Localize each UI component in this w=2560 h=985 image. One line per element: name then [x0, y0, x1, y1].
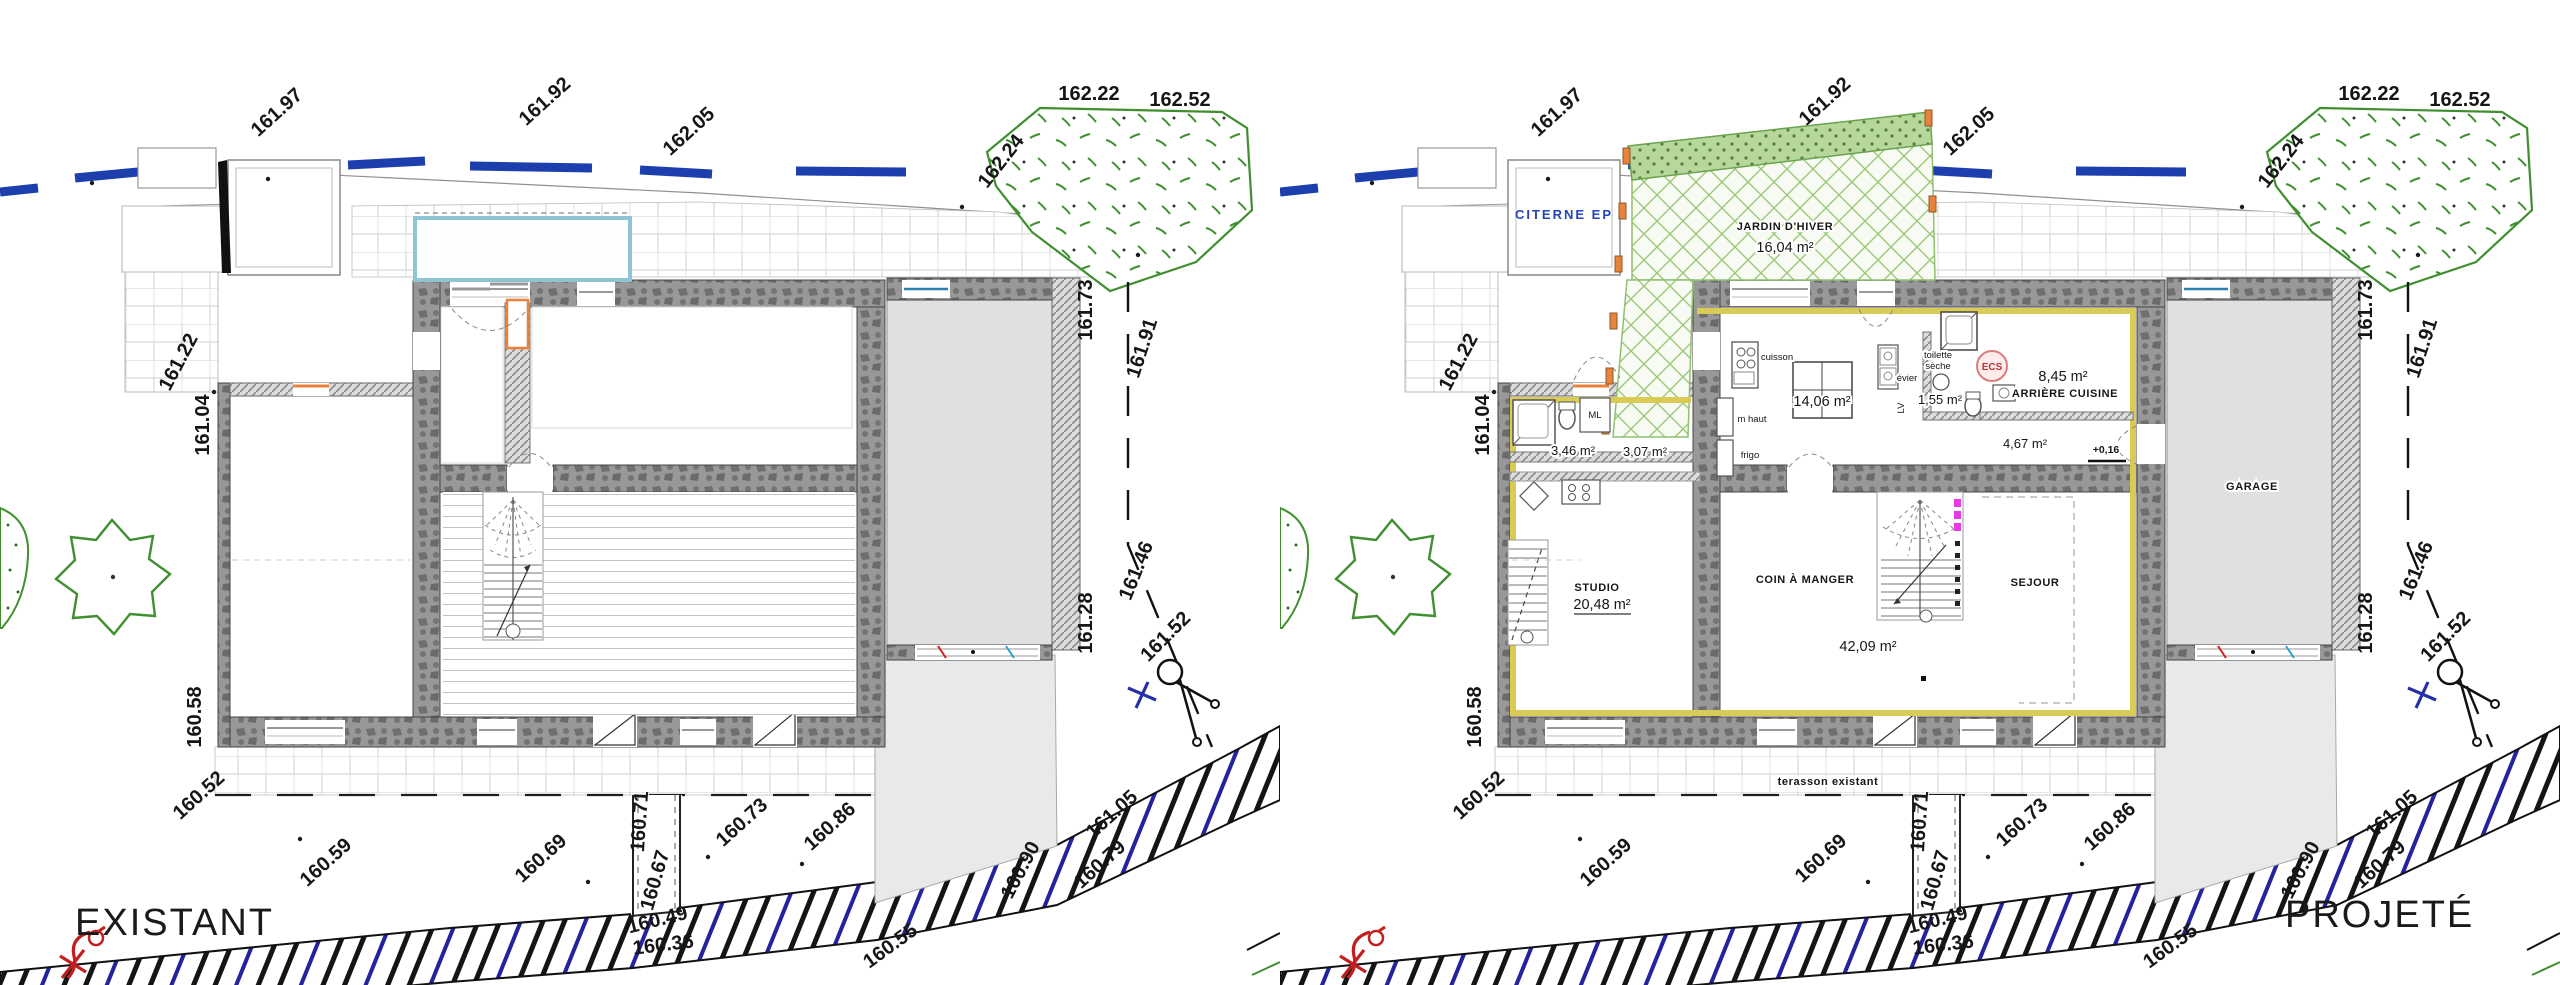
counter	[1510, 472, 1700, 481]
living-area: 42,09 m²	[1839, 639, 1896, 655]
m-haut-label: m haut	[1737, 414, 1766, 425]
stair-magenta-marks	[1954, 499, 1961, 531]
cuisson-label: cuisson	[1761, 352, 1793, 363]
lv-label: LV	[1896, 402, 1907, 414]
stair-main	[1877, 492, 1963, 622]
arriere-name: ARRIÈRE CUISINE	[2012, 387, 2118, 400]
arriere-area: 8,45 m²	[2038, 369, 2087, 385]
cellier-area: 4,67 m²	[2003, 436, 2048, 451]
plan-existant: EXISTANT	[0, 0, 1280, 985]
coin-name: COIN À MANGER	[1756, 573, 1854, 586]
frigo-label: frigo	[1741, 450, 1759, 461]
studio-name: STUDIO	[1574, 582, 1619, 594]
stair-existing	[483, 492, 543, 640]
garage-label: GARAGE	[2226, 481, 2278, 493]
kitchen-area: 14,06 m²	[1793, 394, 1850, 410]
level-label: +0,16	[2093, 444, 2120, 456]
ml-label: ML	[1588, 410, 1601, 421]
veranda-outline	[415, 218, 630, 280]
bath-area: 3,46 m²	[1551, 443, 1596, 458]
sejour-name: SEJOUR	[2011, 577, 2060, 589]
ecs-label: ECS	[1982, 362, 2003, 373]
site-plan-comparison: 161.97 161.92 162.05 162.24 162.22 162.5…	[0, 0, 2560, 985]
door-to-garage	[2137, 424, 2165, 464]
studio-area: 20,48 m²	[1573, 597, 1630, 613]
plan-title-existant: EXISTANT	[75, 902, 274, 944]
partition	[1980, 412, 2133, 420]
jardin-name: JARDIN D'HIVER	[1737, 221, 1834, 233]
winter-garden-strip	[1613, 280, 1693, 437]
entry-area: 3,07 m²	[1623, 444, 1668, 459]
plan-projete: CITERNE EP JARDIN D'HIVER 16,04 m² cuiss…	[1280, 0, 2560, 985]
toilette-label-1: toilette	[1924, 350, 1952, 361]
stair-studio	[1508, 540, 1548, 645]
terrace-label: terasson existant	[1778, 776, 1879, 788]
jardin-area: 16,04 m²	[1756, 240, 1813, 256]
plan-title-projete: PROJETÉ	[2285, 893, 2474, 936]
toilette-label-2: sèche	[1925, 361, 1950, 372]
citerne-label: CITERNE EP	[1515, 207, 1613, 222]
toilette-area: 1,55 m²	[1918, 392, 1963, 407]
evier-label: évier	[1897, 373, 1918, 384]
